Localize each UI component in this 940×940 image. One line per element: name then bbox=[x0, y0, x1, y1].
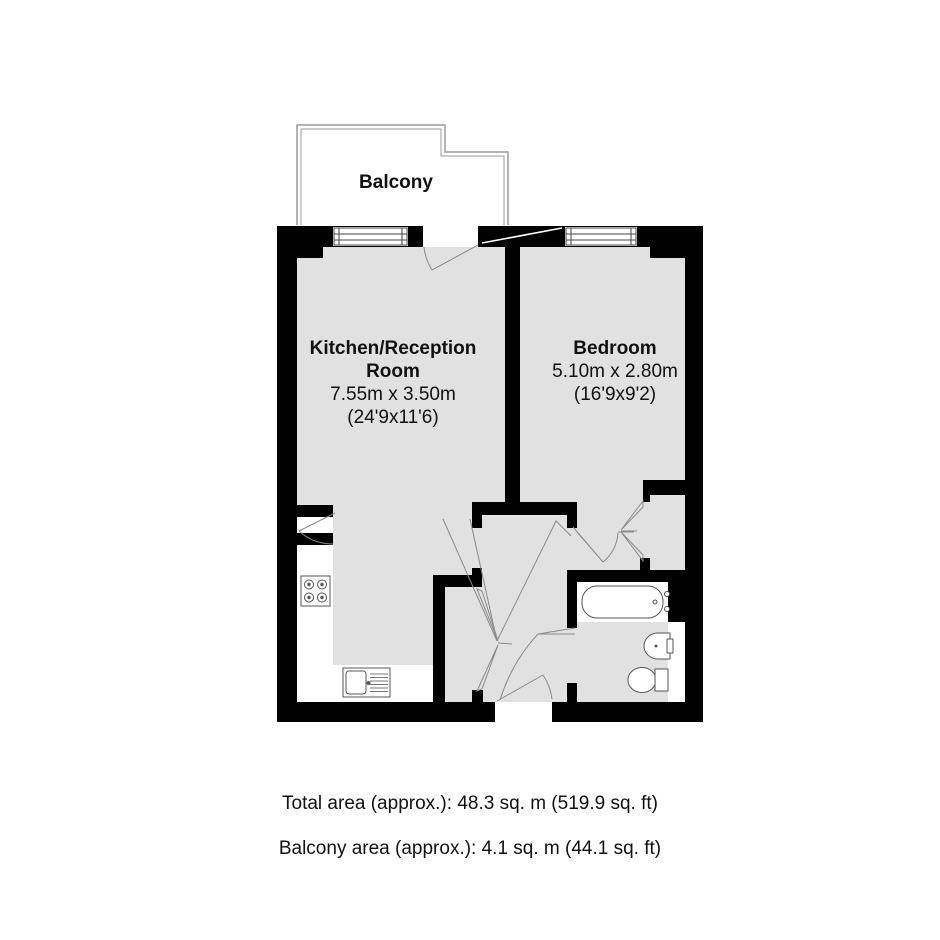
hall-cupboard-bifold-doors bbox=[477, 589, 512, 691]
entry-door-swing bbox=[497, 675, 552, 701]
balcony-area-text: Balcony area (approx.): 4.1 sq. m (44.1 … bbox=[0, 838, 940, 860]
kitchen-sink-icon bbox=[343, 668, 390, 697]
bathtub-icon bbox=[582, 586, 670, 618]
bedroom-dimensions-imperial: (16'9x9'2) bbox=[552, 383, 678, 406]
bedroom-dimensions-metric: 5.10m x 2.80m bbox=[552, 360, 678, 383]
window-bedroom-frame bbox=[566, 228, 636, 245]
balcony-door-swing bbox=[424, 245, 478, 270]
wash-basin-icon bbox=[644, 633, 673, 659]
room-label-kitchen: Kitchen/Reception Room 7.55m x 3.50m (24… bbox=[310, 337, 477, 429]
kitchen-door-swing bbox=[443, 519, 497, 641]
balcony-label: Balcony bbox=[359, 171, 433, 194]
kitchen-cupboard-door-swing bbox=[299, 513, 335, 544]
room-label-bedroom: Bedroom 5.10m x 2.80m (16'9x9'2) bbox=[552, 337, 678, 406]
bathroom-door-swing bbox=[500, 628, 575, 700]
kitchen-dimensions-imperial: (24'9x11'6) bbox=[310, 406, 477, 429]
kitchen-dimensions-metric: 7.55m x 3.50m bbox=[310, 383, 477, 406]
kitchen-name-line2: Room bbox=[366, 361, 420, 382]
window-kitchen-frame bbox=[334, 228, 407, 245]
hob-icon bbox=[301, 576, 330, 606]
wardrobe-bifold-doors bbox=[621, 501, 643, 561]
wall-diagonal-line bbox=[482, 228, 562, 243]
bedroom-name: Bedroom bbox=[573, 338, 656, 359]
kitchen-name-line1: Kitchen/Reception bbox=[310, 338, 477, 359]
total-area-text: Total area (approx.): 48.3 sq. m (519.9 … bbox=[0, 793, 940, 815]
toilet-icon bbox=[628, 668, 668, 693]
floorplan-page: Balcony Kitchen/Reception Room 7.55m x 3… bbox=[0, 0, 940, 940]
bedroom-door-swing bbox=[497, 521, 634, 641]
